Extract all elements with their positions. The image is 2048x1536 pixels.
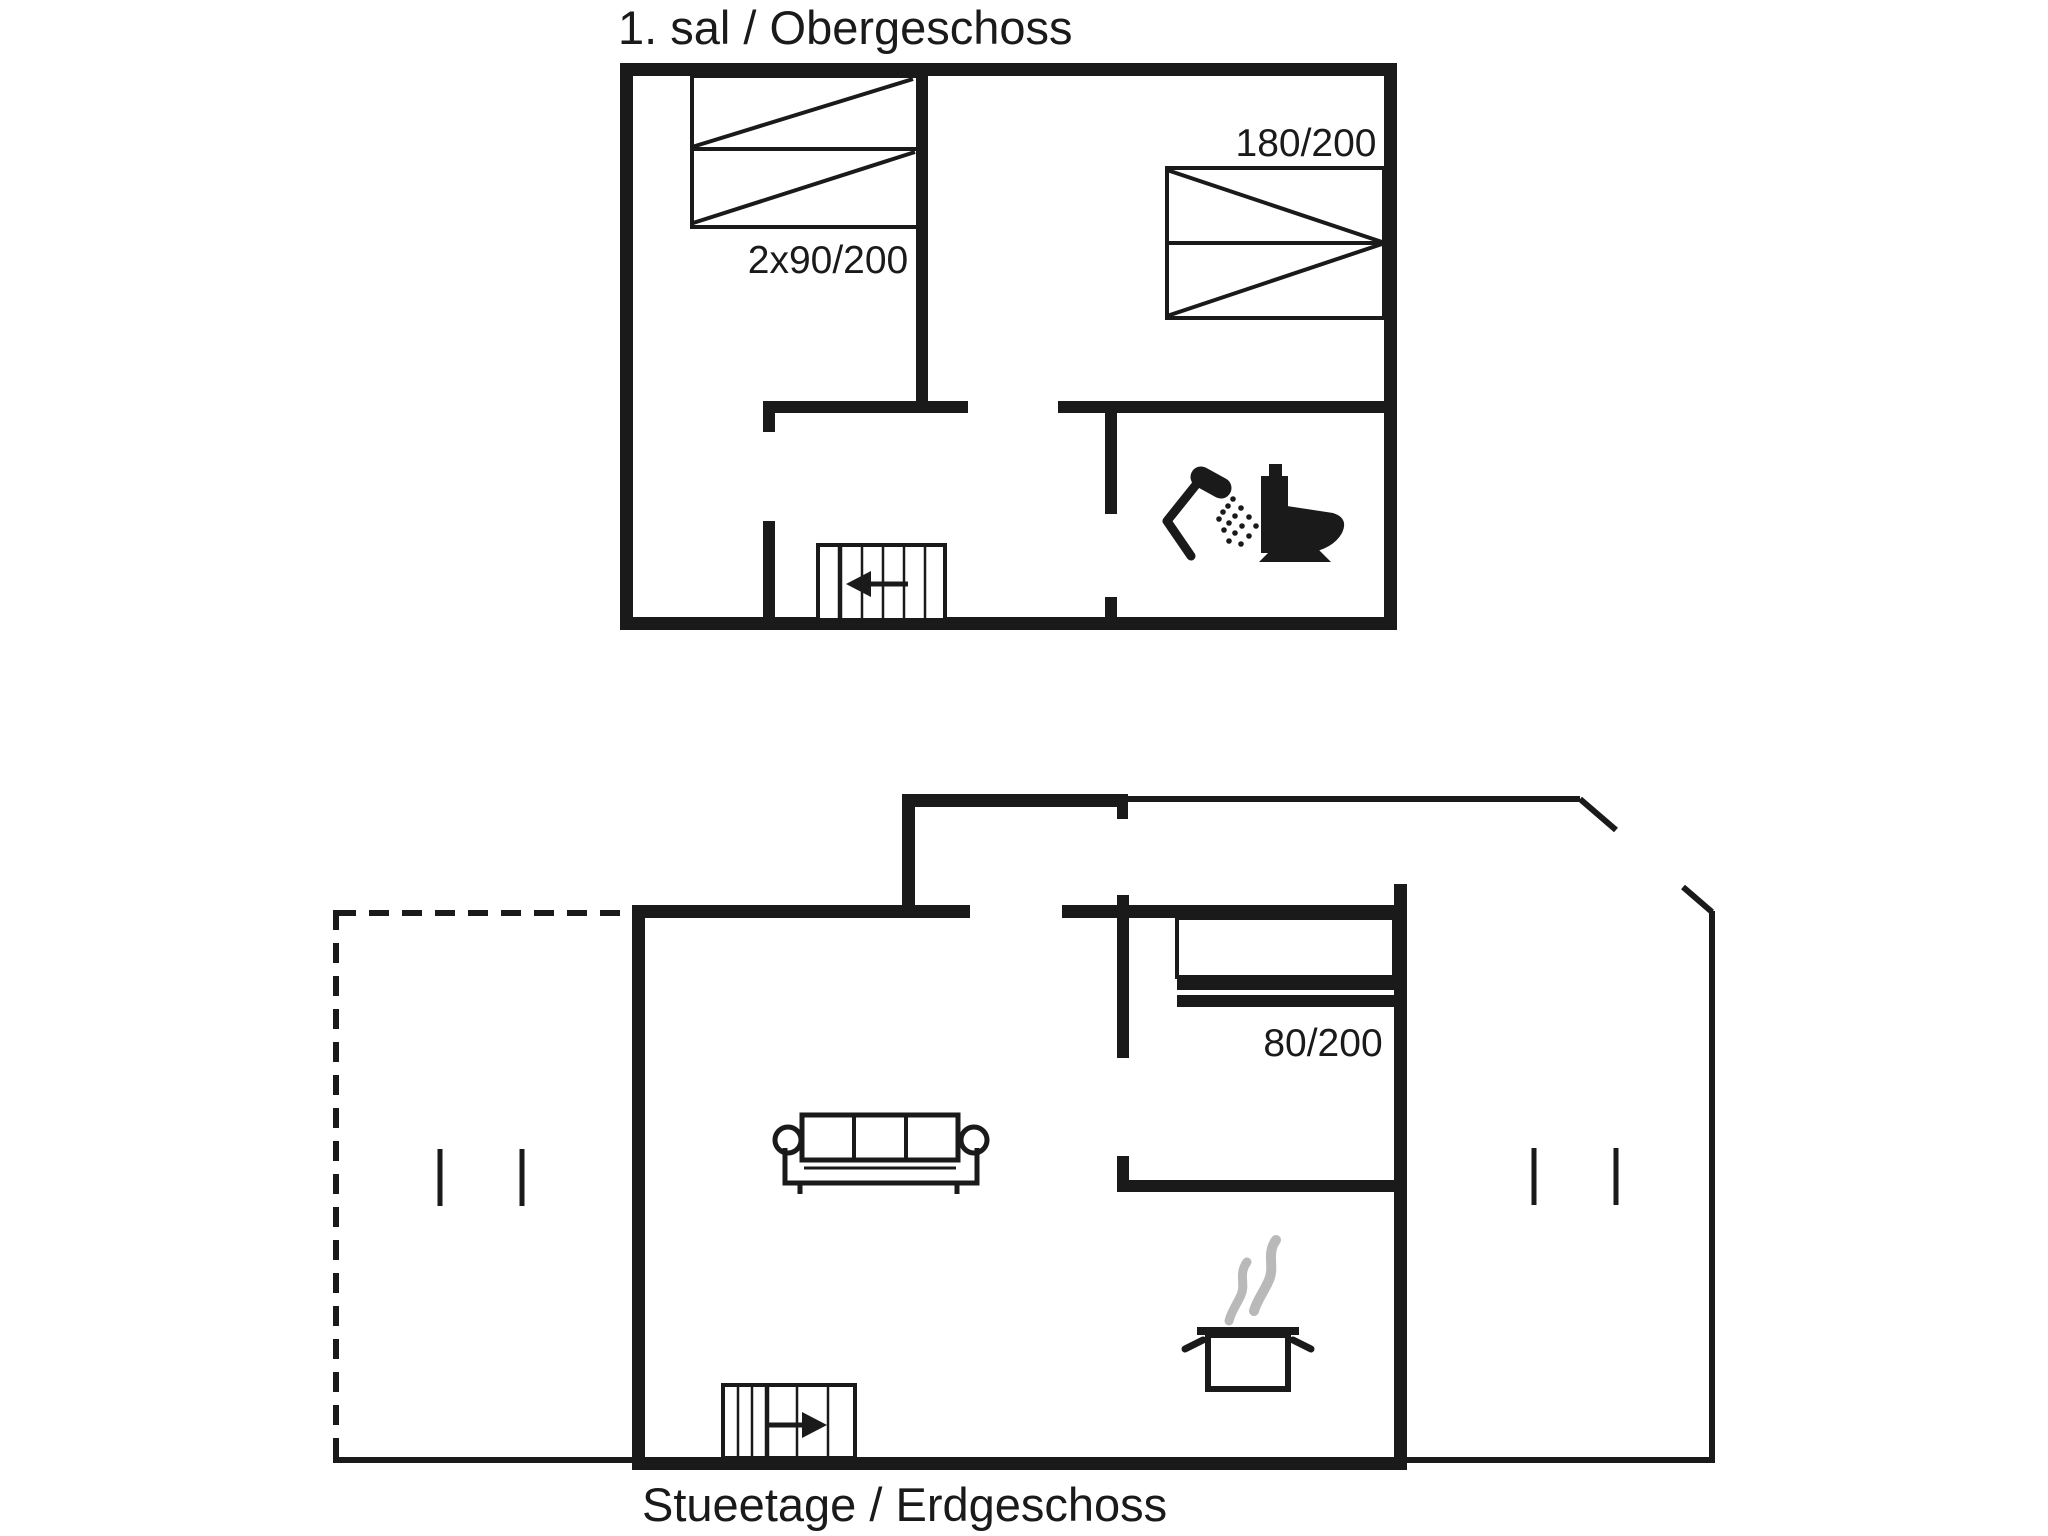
pot-body bbox=[1208, 1335, 1288, 1389]
toilet-icon bbox=[1259, 464, 1344, 562]
bed-single-label: 80/200 bbox=[1263, 1022, 1382, 1065]
bed-double-outline bbox=[692, 76, 918, 227]
bed-double-icon bbox=[692, 76, 918, 227]
sofa-backrest bbox=[802, 1115, 958, 1160]
terrace-outline bbox=[333, 910, 638, 1460]
staircase-arrow-left-icon bbox=[818, 545, 945, 620]
floorplan-page: 1. sal / Obergeschoss 2x90/200 bbox=[0, 0, 2048, 1536]
ground-floor-title: Stueetage / Erdgeschoss bbox=[642, 1478, 1167, 1531]
shower-icon bbox=[1167, 477, 1259, 556]
steam-wisp bbox=[1229, 1262, 1247, 1321]
upper-floor-plan: 1. sal / Obergeschoss 2x90/200 bbox=[618, 1, 1391, 624]
bed-single-outline bbox=[1177, 918, 1394, 977]
bed-large-diagonal-bottom bbox=[1167, 244, 1382, 316]
bed-double-diagonal-bottom bbox=[693, 152, 915, 223]
bed-double-diagonal-top bbox=[692, 79, 913, 147]
right-terrace-chamfer-lower bbox=[1683, 887, 1712, 912]
bed-large-label: 180/200 bbox=[1236, 122, 1377, 165]
right-terrace-chamfer-upper bbox=[1580, 799, 1616, 830]
bed-single-footboard-bar bbox=[1177, 995, 1394, 1007]
sofa-icon bbox=[775, 1115, 987, 1194]
toilet-bowl bbox=[1287, 506, 1344, 553]
floorplan-drawing: 1. sal / Obergeschoss 2x90/200 bbox=[0, 0, 2048, 1536]
bed-single-icon bbox=[1177, 918, 1394, 1007]
staircase-arrow-right-icon bbox=[723, 1385, 855, 1458]
toilet-button bbox=[1269, 464, 1282, 478]
shower-head bbox=[1201, 477, 1221, 488]
steam-wisp bbox=[1254, 1240, 1276, 1311]
steaming-pot-icon bbox=[1185, 1240, 1311, 1389]
bed-large-diagonal-top bbox=[1167, 170, 1382, 242]
pot-handle-left bbox=[1185, 1340, 1203, 1349]
sofa-armrest-right bbox=[961, 1127, 987, 1153]
stairs-outline bbox=[723, 1385, 855, 1458]
ground-floor-plan: 80/200 bbox=[333, 794, 1715, 1531]
toilet-base bbox=[1259, 550, 1331, 562]
bed-double-label: 2x90/200 bbox=[748, 239, 908, 282]
sofa-armrest-left bbox=[775, 1127, 801, 1153]
bed-single-footboard-bar bbox=[1177, 978, 1394, 990]
shower-hose bbox=[1167, 481, 1199, 556]
toilet-tank bbox=[1261, 476, 1288, 553]
pot-handle-right bbox=[1293, 1340, 1311, 1349]
shower-spray-dots bbox=[1216, 496, 1259, 547]
bed-large-icon bbox=[1167, 168, 1384, 318]
upper-floor-title: 1. sal / Obergeschoss bbox=[618, 1, 1073, 54]
